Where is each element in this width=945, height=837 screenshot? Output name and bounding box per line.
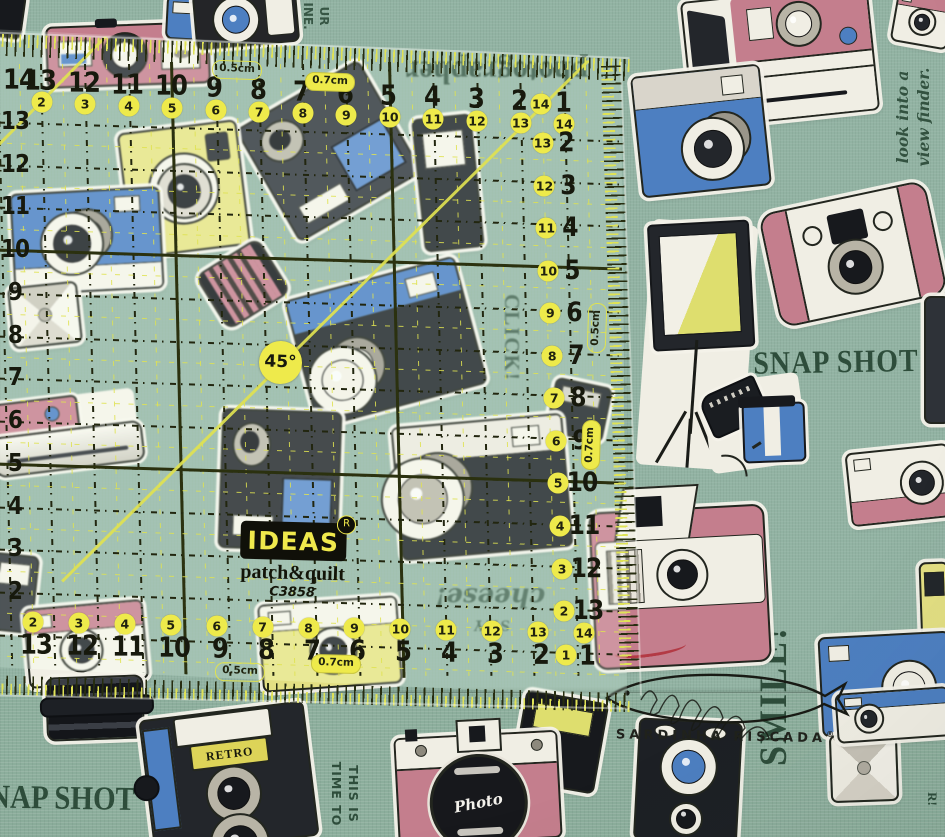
sticker-dark-vertical-cam [411,113,485,253]
fabric-text-say-cheese: SAYcheese! [435,579,545,636]
sticker-slr-mid-cam [390,413,573,561]
sticker-tlr-topview [192,0,300,50]
viewfinder-window [721,74,745,95]
sticker-pink-barrel-left [0,387,142,478]
fabric-text-line: SAY [435,614,545,636]
fabric-text-line: R! [923,792,941,806]
red-script-squiggle [614,636,688,661]
lens-script-label: Photo [453,789,505,816]
camera-window [560,385,602,408]
fabric-text-partial-r: R! [923,792,941,806]
viewfinder-window [510,425,541,448]
sticker-camcorder-mid [218,408,343,552]
sticker-film-battery [195,237,292,330]
fabric-text-line: look into a [893,68,914,167]
sticker-pink-white-cam-right [844,443,945,527]
lens-glint [901,680,909,688]
sticker-slr-45-cam [284,255,488,428]
fabric-text-this-is-time-to: THIS ISTIME TO [327,762,361,827]
fabric-text-line: cheese! [435,579,545,614]
viewfinder-window [468,725,485,742]
camcorder-screen [330,118,407,193]
viewfinder-window [634,495,663,527]
fabric-text-nap-shot: NAP SHOT [0,775,135,823]
fabric-text-top-partial: URINE. [300,2,332,29]
viewfinder-window [853,458,871,472]
fabric-text-line: photographer [406,50,589,94]
viewfinder-window [32,614,52,629]
fabric-text-line: view finder. [914,68,935,167]
sticker-flash-cube-left [7,281,83,350]
lens-ring-wide [40,694,154,718]
rewind-lever [404,729,417,742]
flash-center [37,307,52,322]
camcorder-grip [298,183,350,224]
registered-mark: ® [826,730,834,739]
sticker-blue-compact-left [9,186,164,296]
stand-leg [655,411,687,464]
shutter-button [95,18,118,28]
fabric-text-line: THIS IS [344,762,361,827]
viewfinder-window [204,131,230,162]
sticker-lens-below-ruler [45,674,145,741]
fabric-text-look-into-viewfinder: look into aview finder. [893,68,935,167]
fabric-text-line: TIME TO [327,762,344,827]
camcorder-grip [232,514,274,536]
camera-end-cap [896,182,945,297]
camera-lens [860,710,879,729]
lens-glint [681,811,686,816]
camera-end-cap [760,211,810,326]
sticker-flash-cube-bottomright [829,733,899,803]
rewind-dial [871,209,895,233]
camera-side [264,0,295,36]
lens-glint [325,644,332,651]
fabric-text-line: INE. [300,2,316,29]
stand-leg [685,418,691,467]
lens-glint [864,715,868,719]
sticker-pink-instant-cam [588,504,772,671]
lens-glint [919,18,923,22]
viewfinder-window [114,195,140,212]
film-dial [800,224,824,248]
flash-center [857,761,871,775]
fabric-text-photographer: photographer [406,50,589,94]
window-blue [61,53,87,64]
sticker-white-cam-topright [890,0,945,51]
sticker-dark-edge-right [924,296,945,424]
camera-top-plate [286,258,461,336]
sticker-pink-photo-slr: Photo [393,730,562,837]
fabric-text-line: NAP SHOT [0,775,135,823]
sticker-black-corner-topleft [0,0,27,40]
fabric-text-line: UR [316,2,332,29]
bellows-folds [606,549,645,605]
viewfinder-window [268,611,291,627]
sticker-camcorder-topright [235,59,423,243]
camera-window [421,129,466,169]
sticker-yellow-compact-bottom [257,595,403,693]
lens-glint [229,15,236,22]
sticker-blue-telephoto-cam [630,64,772,199]
canister-label [763,406,780,455]
canister-cap [738,395,795,408]
fabric-text-line: CLICK! [498,294,526,382]
sticker-retro-tlr-cam: RETRO [138,700,319,837]
fabric-text-click: CLICK! [498,294,526,382]
sticker-topview-cam [758,180,945,329]
softbox-diffuser [658,232,741,336]
camera-window [924,572,945,596]
viewfinder-window [746,7,775,41]
photo-canvas: photographerURINE.look into aview finder… [0,0,945,837]
camcorder-screen [280,477,332,534]
camera-window [0,562,31,586]
